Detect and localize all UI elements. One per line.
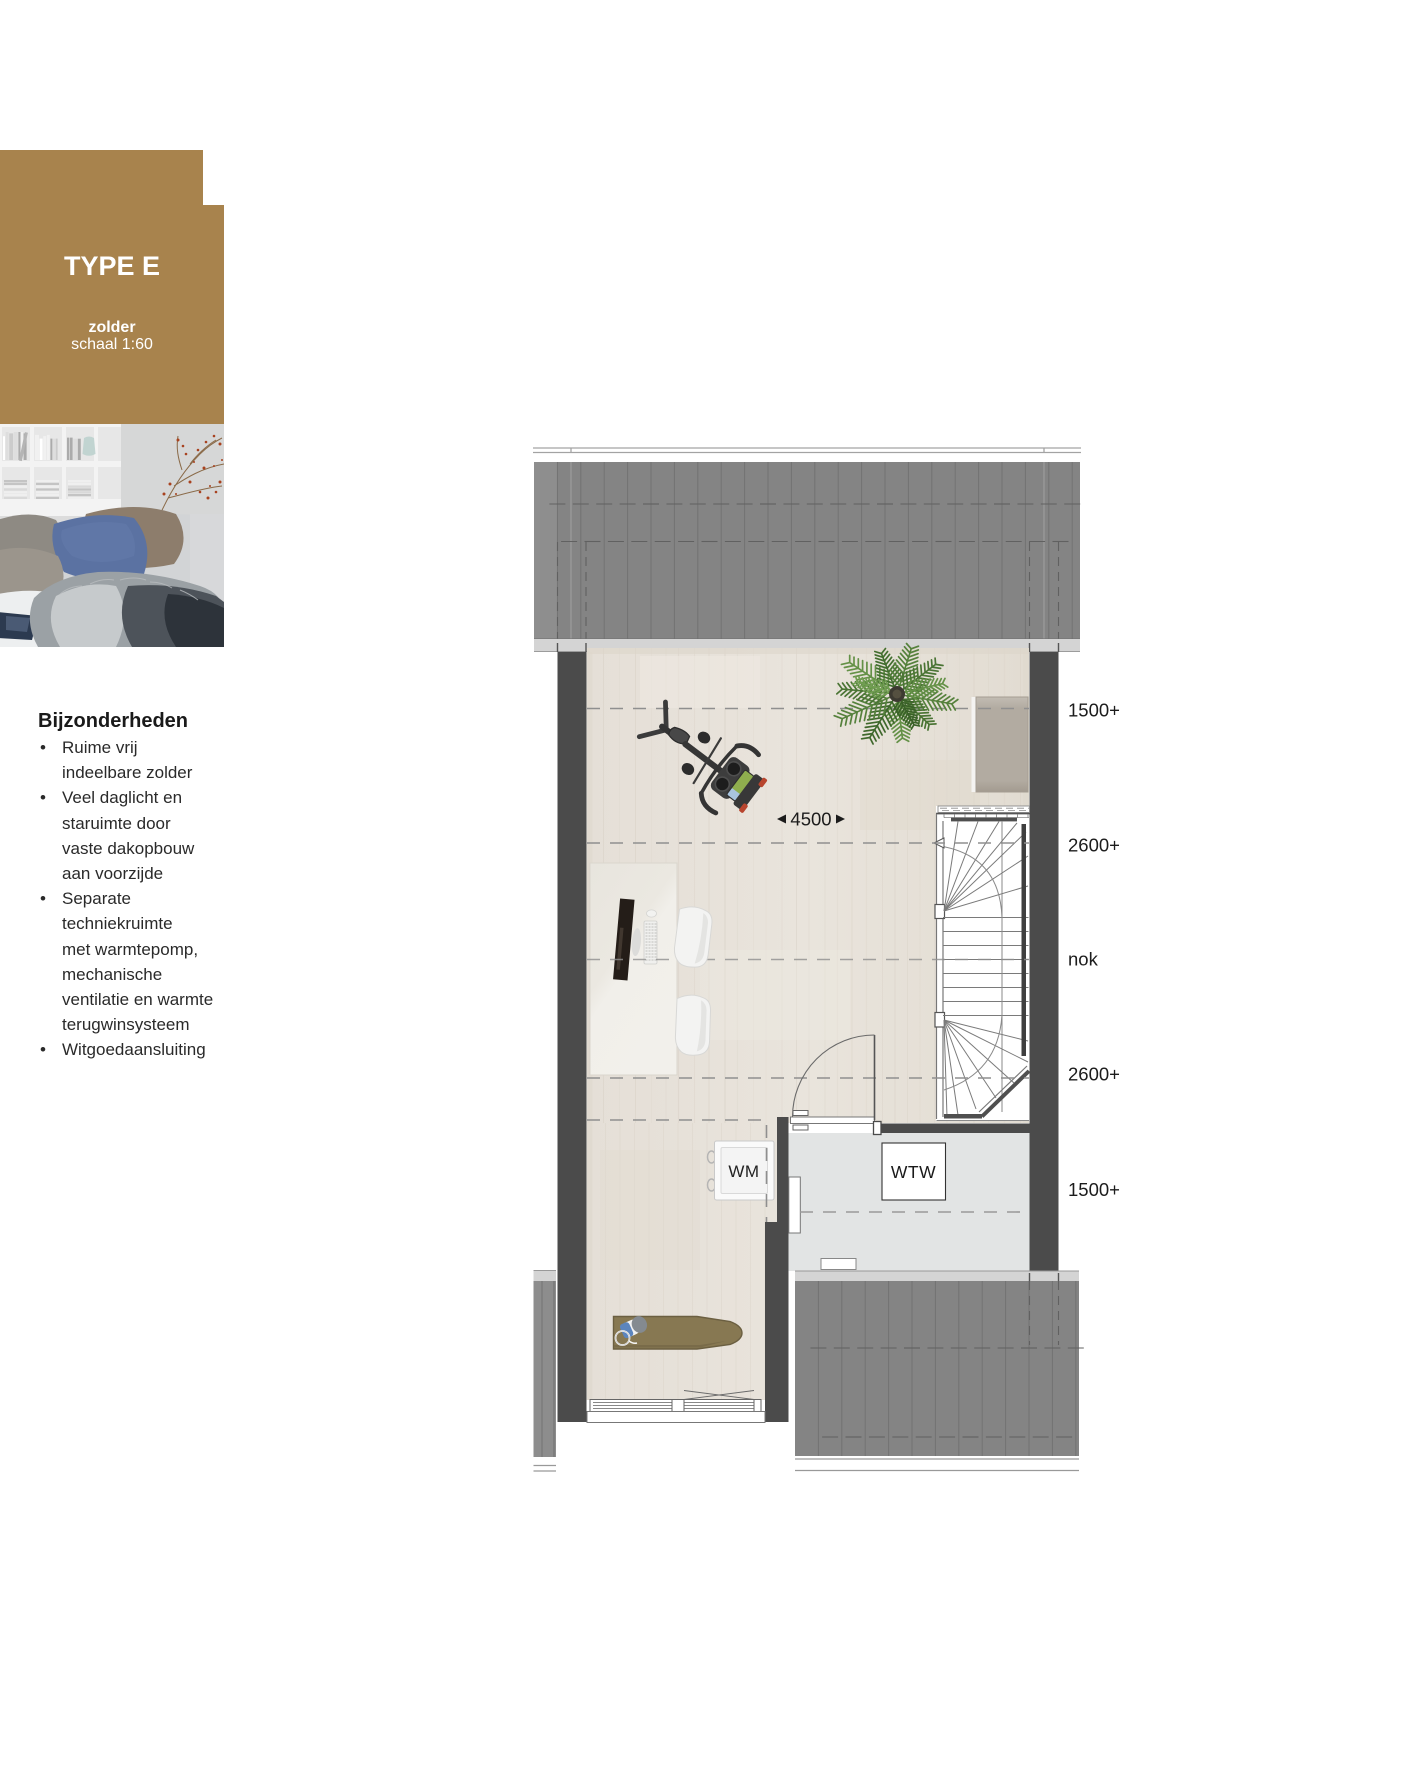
svg-text:nok: nok [1068, 949, 1099, 970]
svg-text:WTW: WTW [891, 1162, 936, 1182]
svg-text:2600+: 2600+ [1068, 835, 1120, 856]
svg-text:4500: 4500 [790, 809, 831, 830]
svg-text:2600+: 2600+ [1068, 1064, 1120, 1085]
svg-text:WM: WM [728, 1162, 759, 1181]
svg-text:1500+: 1500+ [1068, 1179, 1120, 1200]
svg-text:1500+: 1500+ [1068, 700, 1120, 721]
